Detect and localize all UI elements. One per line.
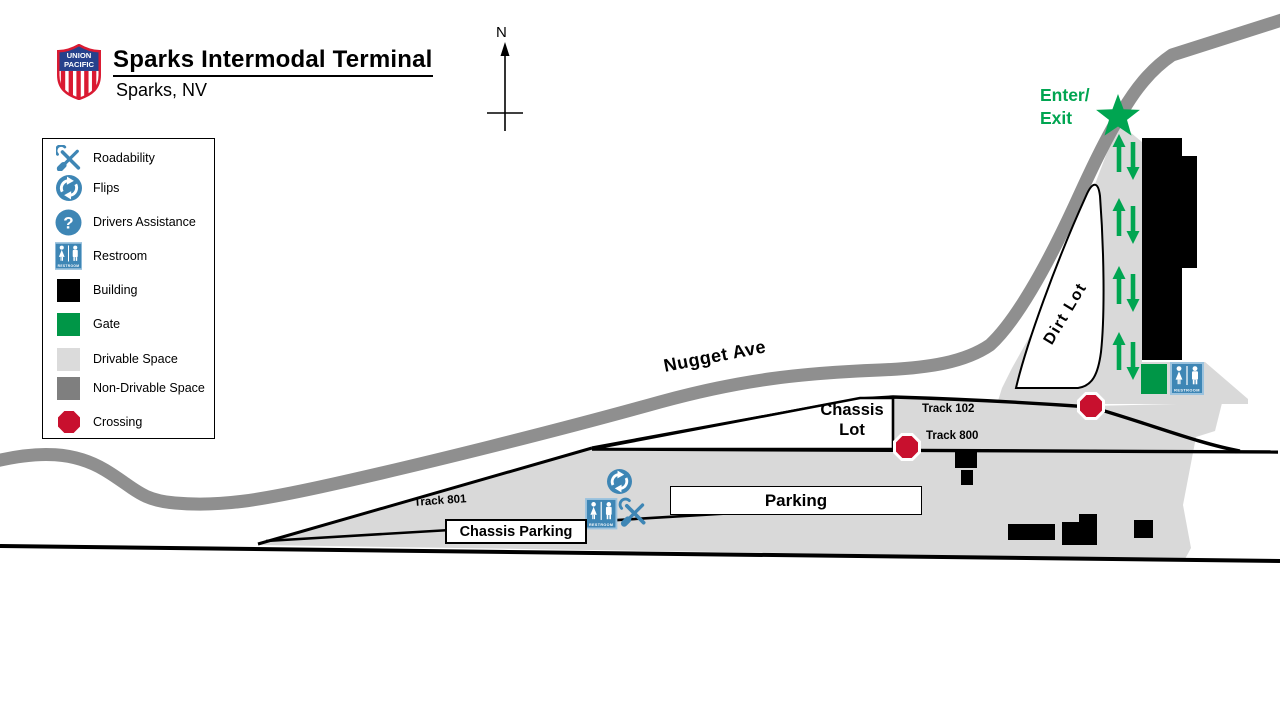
page-title: Sparks Intermodal Terminal [113,46,433,77]
logo-text-union: UNION [67,51,92,60]
building-row-l [1062,522,1097,545]
drivable-space-swatch [55,343,82,375]
chassis-parking-label-box: Chassis Parking [445,519,587,544]
wrench-screwdriver-icon [55,142,82,174]
building-swatch [55,274,82,306]
legend-item-roadability: Roadability [43,142,155,174]
non-drivable-space-swatch [55,372,82,404]
crossing-track800 [895,435,920,460]
legend-label-non-drivable-space: Non-Drivable Space [93,381,205,395]
terminal-map-page: RESTROOM [0,0,1280,720]
legend-label-flips: Flips [93,181,119,195]
flips-icon [55,172,82,204]
chassis-lot-line2: Lot [806,420,898,440]
legend-box: Roadability Flips ? Drivers Assistance R… [42,138,215,439]
restroom-icon-yard [586,499,616,528]
building-yard-small-stem [961,470,973,485]
enter-exit-label: Enter/ Exit [1040,84,1090,130]
legend-item-drivers-assistance: ? Drivers Assistance [43,206,196,238]
building-row-square [1134,520,1153,538]
enter-exit-line1: Enter/ [1040,84,1090,107]
legend-label-gate: Gate [93,317,120,331]
restroom-icon-gate [1171,363,1203,394]
gate-rect [1141,364,1167,394]
parking-label-box: Parking [670,486,922,515]
question-icon: ? [55,206,82,238]
north-label: N [496,24,507,41]
question-glyph: ? [63,213,73,232]
legend-item-building: Building [43,274,137,306]
track-102-label: Track 102 [922,403,974,415]
legend-label-drivers-assistance: Drivers Assistance [93,215,196,229]
legend-label-crossing: Crossing [93,415,142,429]
flips-icon-yard [607,469,632,494]
building-row-wide [1008,524,1055,540]
chassis-lot-line1: Chassis [806,400,898,420]
building-yard-small [955,452,977,468]
chassis-lot-label: Chassis Lot [806,400,898,440]
union-pacific-logo: UNION PACIFIC [56,44,102,100]
crossing-track102 [1079,394,1104,419]
crossing-icon [55,406,82,438]
restroom-icon [55,240,82,272]
page-subtitle: Sparks, NV [116,80,207,101]
legend-item-flips: Flips [43,172,119,204]
building-main [1142,138,1182,360]
legend-label-building: Building [93,283,137,297]
legend-item-non-drivable-space: Non-Drivable Space [43,372,205,404]
legend-item-restroom: Restroom [43,240,147,272]
gate-swatch [55,308,82,340]
legend-item-gate: Gate [43,308,120,340]
legend-label-roadability: Roadability [93,151,155,165]
logo-text-pacific: PACIFIC [64,60,95,69]
enter-exit-line2: Exit [1040,107,1090,130]
legend-label-drivable-space: Drivable Space [93,352,178,366]
building-row-l-top [1079,514,1097,523]
legend-item-drivable-space: Drivable Space [43,343,178,375]
building-main-annex [1182,156,1197,268]
legend-item-crossing: Crossing [43,406,142,438]
north-arrow [487,42,523,131]
track-800-label: Track 800 [926,430,978,442]
legend-label-restroom: Restroom [93,249,147,263]
